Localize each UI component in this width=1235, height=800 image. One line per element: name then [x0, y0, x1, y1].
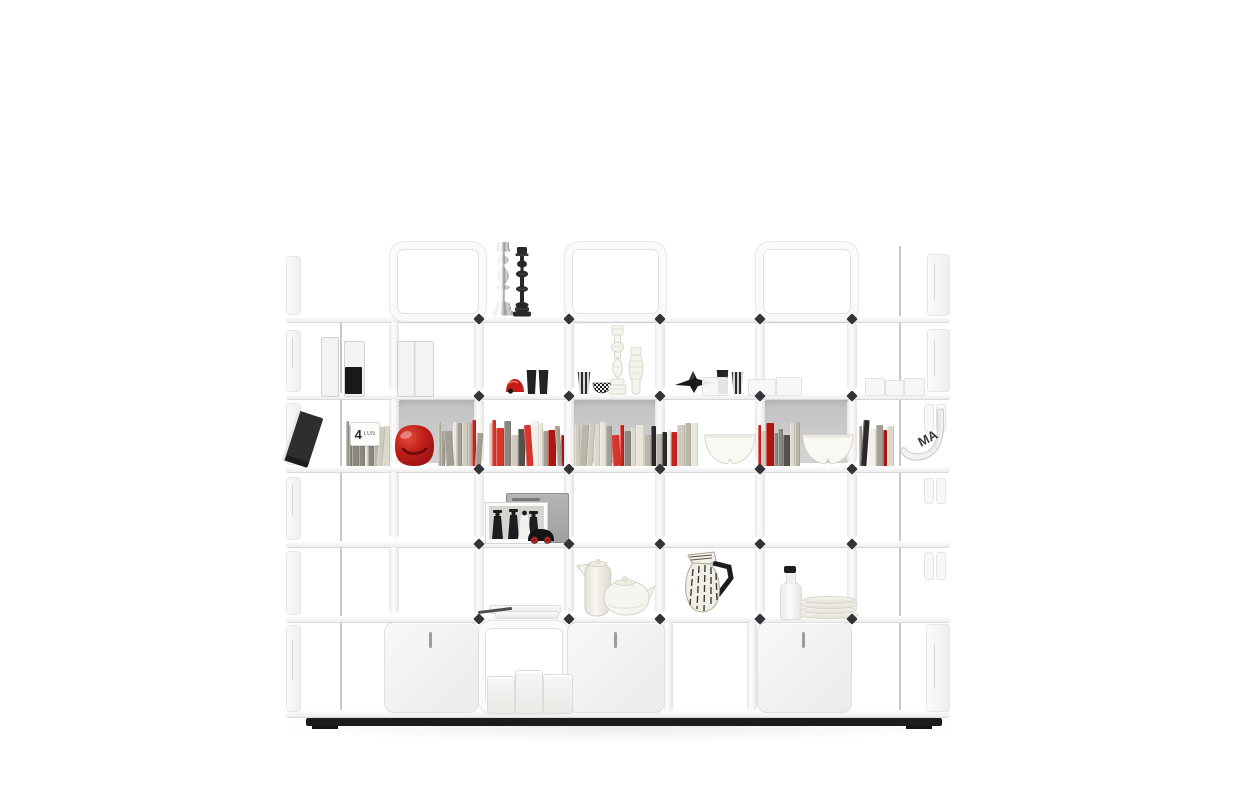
- calendar-day: 4: [355, 428, 362, 441]
- translucent-box: [885, 380, 904, 396]
- book-spine: [677, 425, 685, 466]
- book-spine: [600, 422, 607, 466]
- striped-cup: [731, 372, 744, 394]
- red-toy: [504, 377, 526, 394]
- book-group: [489, 420, 567, 466]
- book-spine: [876, 425, 883, 466]
- frame-post: [564, 547, 574, 613]
- black-cup: [538, 370, 549, 394]
- plate-stack: [802, 596, 856, 604]
- book-spine: [511, 435, 518, 466]
- wing-slot: [934, 340, 935, 376]
- frame-post: [747, 622, 757, 711]
- book-spine: [636, 425, 644, 466]
- translucent-box: [865, 378, 885, 396]
- black-cup: [526, 370, 537, 394]
- frame-post: [655, 547, 665, 613]
- wing-slot: [934, 644, 935, 688]
- cube-module: [564, 241, 667, 322]
- white-canister: [543, 674, 573, 714]
- white-carved-vase: [626, 347, 646, 395]
- wing-slat: [924, 478, 934, 504]
- product-photo-stage: 4 LUN MA: [0, 0, 1235, 800]
- book-spine: [656, 434, 662, 466]
- frame-post: [389, 472, 399, 538]
- frame-post: [564, 322, 574, 390]
- door-handle: [614, 632, 617, 648]
- translucent-box: [776, 377, 802, 396]
- book-spine: [783, 435, 790, 466]
- striped-cup: [577, 372, 591, 394]
- book-spine: [766, 423, 774, 466]
- white-canister: [487, 676, 515, 714]
- wing-slot: [292, 485, 293, 515]
- base-foot: [312, 726, 338, 729]
- book-group: [758, 422, 800, 466]
- book-spine: [504, 421, 511, 466]
- wing-slat: [924, 552, 934, 580]
- side-wing-panel: [286, 551, 301, 615]
- book-spine: [532, 421, 539, 466]
- book-spine: [496, 428, 504, 466]
- wing-slot: [292, 640, 293, 680]
- book-spine: [644, 435, 651, 466]
- book-spine: [795, 422, 800, 466]
- red-glossy-bag: [392, 422, 437, 468]
- frame-post: [655, 322, 665, 390]
- bottle-cap: [784, 566, 796, 573]
- frame-post: [389, 547, 399, 613]
- frame-post: [474, 322, 484, 390]
- white-split-bowl: [703, 433, 756, 466]
- black-candlestick: [512, 247, 532, 318]
- frame-post: [755, 472, 765, 538]
- white-teapot: [598, 576, 655, 618]
- glass-vase: [321, 337, 339, 397]
- side-wing-panel: [927, 254, 950, 316]
- wing-slat: [936, 552, 946, 580]
- frame-post: [847, 322, 857, 390]
- wing-slot: [934, 264, 935, 300]
- bottle-neck: [786, 572, 796, 584]
- black-cylinder: [345, 367, 362, 394]
- rolled-magazine: MA: [897, 407, 951, 468]
- book-spine: [662, 432, 667, 466]
- frame-post: [474, 547, 484, 613]
- book-group: [438, 420, 484, 466]
- white-carved-candlestick: [608, 325, 627, 395]
- book-spine: [691, 423, 698, 466]
- frame-post: [655, 472, 665, 538]
- side-wing-panel: [286, 256, 301, 315]
- plinth-base: [306, 718, 942, 726]
- gray-box-label: [512, 498, 540, 501]
- side-wing-panel: [286, 330, 301, 392]
- base-foot: [906, 726, 932, 729]
- book-spine: [475, 433, 483, 466]
- support-rod: [340, 322, 342, 712]
- side-wing-panel: [926, 624, 950, 712]
- door-handle: [429, 632, 432, 648]
- book-spine: [624, 431, 631, 466]
- calendar-card: 4 LUN: [350, 422, 380, 446]
- book-spine: [651, 426, 656, 466]
- cube-module: [755, 241, 859, 322]
- toy-car-black-red-wheels: [526, 527, 556, 544]
- wing-slot: [292, 338, 293, 368]
- translucent-box: [702, 377, 728, 396]
- translucent-box: [904, 378, 925, 396]
- wing-slat: [936, 478, 946, 504]
- striped-jug: [675, 551, 735, 617]
- book-spine: [887, 426, 894, 466]
- side-wing-panel: [286, 477, 301, 540]
- glass-vase: [414, 341, 434, 397]
- frame-post: [474, 472, 484, 538]
- side-wing-panel: [286, 625, 301, 712]
- book-group: [859, 420, 897, 466]
- calendar-weekday: LUN: [364, 432, 376, 437]
- cube-module: [389, 241, 487, 322]
- side-wing-panel: [927, 329, 950, 392]
- book-group: [572, 422, 698, 466]
- white-canister: [515, 670, 543, 714]
- door-handle: [802, 632, 805, 648]
- frame-post: [755, 547, 765, 613]
- white-tray: [495, 611, 559, 619]
- frame-post: [847, 472, 857, 538]
- white-split-bowl: [801, 433, 854, 466]
- book-spine: [868, 429, 876, 466]
